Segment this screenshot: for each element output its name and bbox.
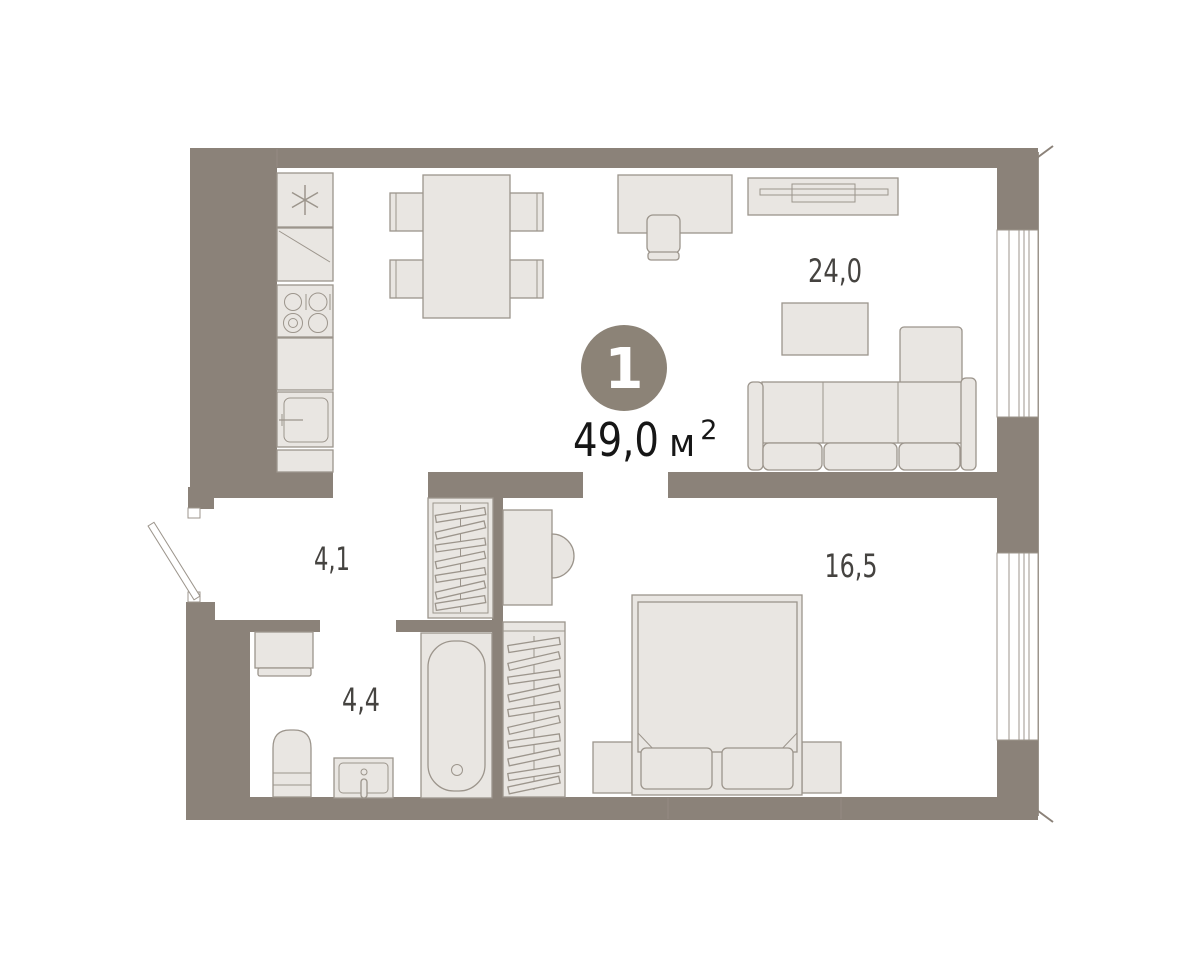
hallway-wardrobe: [428, 498, 493, 618]
corner-cabinet: [277, 228, 333, 281]
room-area-label-hallway: 4,1: [314, 540, 350, 578]
dining-chair: [509, 193, 543, 231]
kitchen-counter: [277, 173, 333, 472]
room-area-label-bathroom: 4,4: [342, 681, 380, 719]
dining-chair: [509, 260, 543, 298]
bedroom-furniture: [503, 510, 841, 797]
bed-blanket: [638, 602, 797, 752]
dining-chair: [390, 260, 424, 298]
nightstand-right: [802, 742, 841, 793]
dining-set: [390, 175, 543, 318]
window-bottom-right: [997, 553, 1038, 740]
kitchen-end-cabinet: [277, 450, 333, 472]
rooms-count-number: 1: [605, 337, 644, 402]
coffee-table: [782, 303, 868, 355]
rooms-count-badge: 1: [581, 325, 667, 411]
room-area-label-bedroom: 16,5: [825, 547, 878, 585]
total-area-label: 49,0 м 2: [573, 413, 717, 467]
floor-plan-canvas: 24,0 4,1 4,4 16,5 1 49,0 м 2: [0, 0, 1200, 970]
kitchen-cabinet: [277, 338, 333, 390]
dining-table: [423, 175, 510, 318]
bathtub: [421, 633, 492, 798]
toilet: [273, 730, 311, 797]
floor-plan: 24,0 4,1 4,4 16,5 1 49,0 м 2: [0, 0, 1200, 970]
room-area-label-living-kitchen: 24,0: [808, 252, 862, 290]
nightstand-left: [593, 742, 632, 793]
bedroom-wardrobe: [503, 622, 565, 797]
bed: [632, 595, 802, 795]
bed-pillow: [722, 748, 793, 789]
entrance-door: [148, 508, 200, 602]
washing-machine: [255, 632, 313, 676]
bathroom-sink: [334, 758, 393, 798]
bed-pillow: [641, 748, 712, 789]
vanity-table: [503, 510, 552, 605]
desk-chair: [647, 215, 680, 253]
window-top-right: [997, 230, 1038, 417]
dining-chair: [390, 193, 424, 231]
vanity-chair: [552, 534, 574, 578]
